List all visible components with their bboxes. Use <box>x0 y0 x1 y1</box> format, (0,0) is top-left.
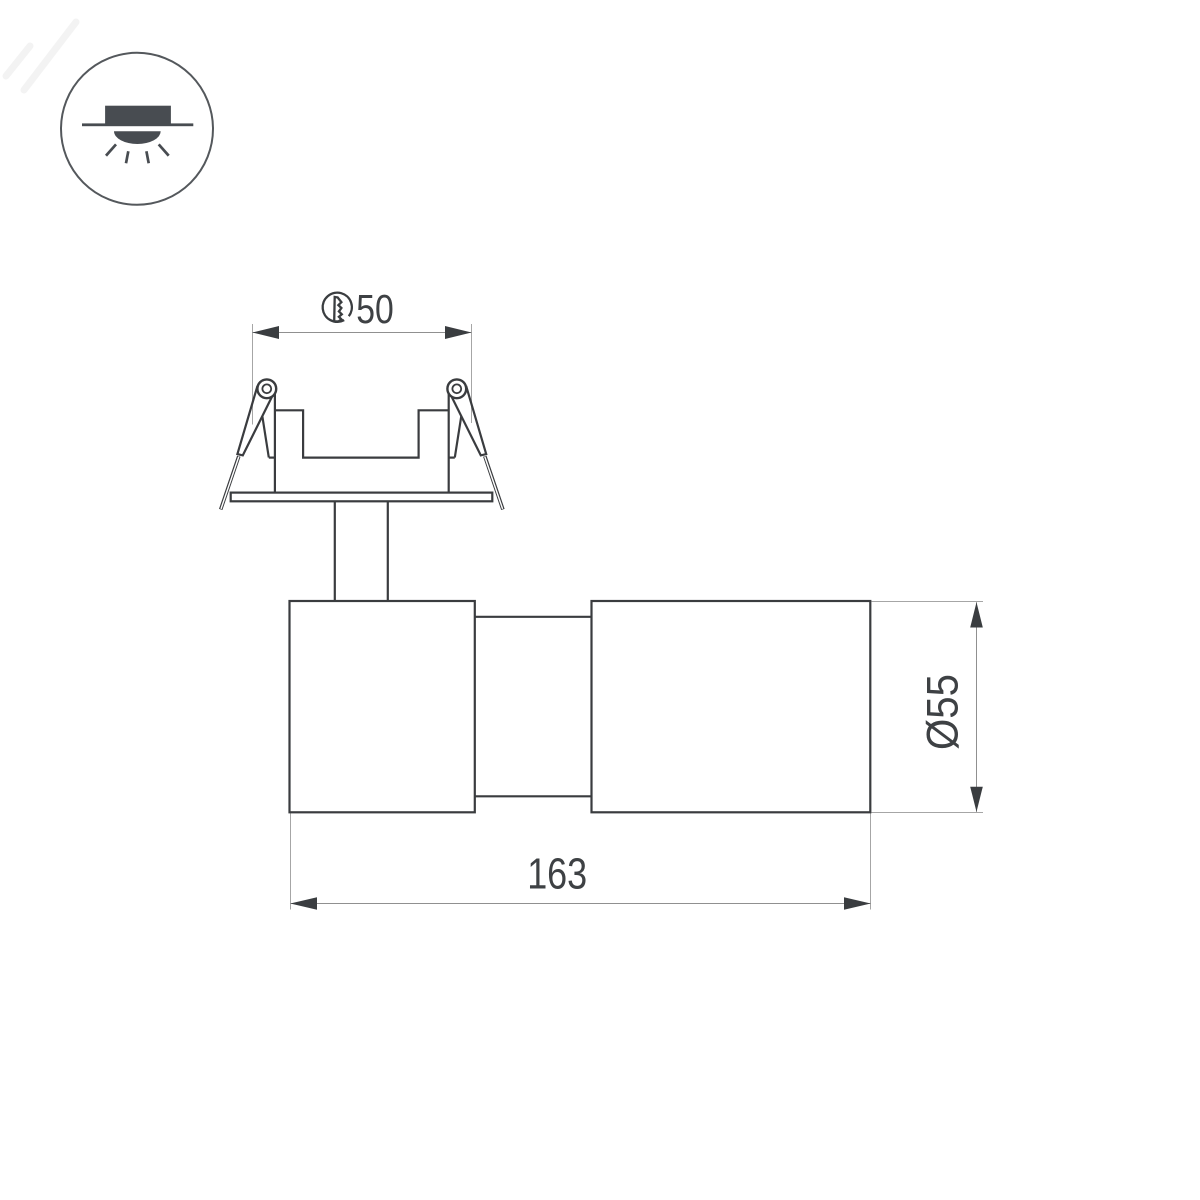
svg-text:163: 163 <box>527 849 587 898</box>
svg-text:50: 50 <box>356 286 394 332</box>
svg-text:Ø55: Ø55 <box>919 674 968 750</box>
